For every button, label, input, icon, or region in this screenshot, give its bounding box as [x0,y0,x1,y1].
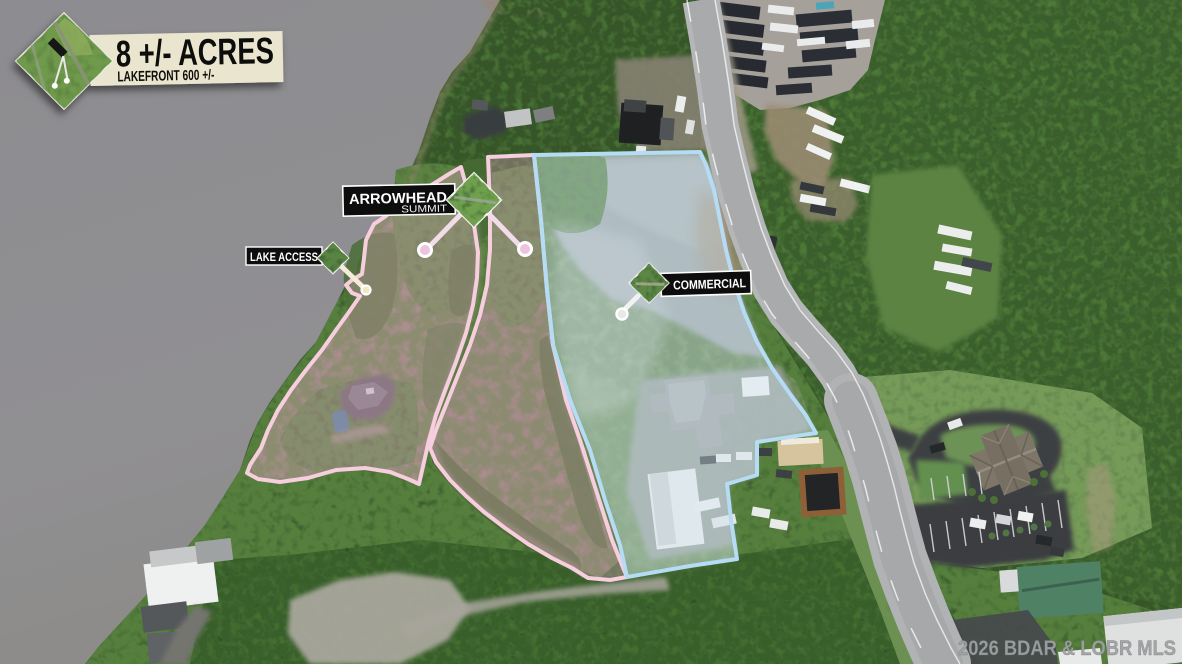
svg-text:LAKEFRONT 600 +/-: LAKEFRONT 600 +/- [117,67,214,85]
svg-text:SUMMIT: SUMMIT [401,203,447,215]
svg-text:2026 BDAR & LOBR MLS: 2026 BDAR & LOBR MLS [958,637,1176,660]
svg-text:LAKE ACCESS: LAKE ACCESS [250,252,318,264]
svg-text:COMMERCIAL: COMMERCIAL [673,276,747,292]
